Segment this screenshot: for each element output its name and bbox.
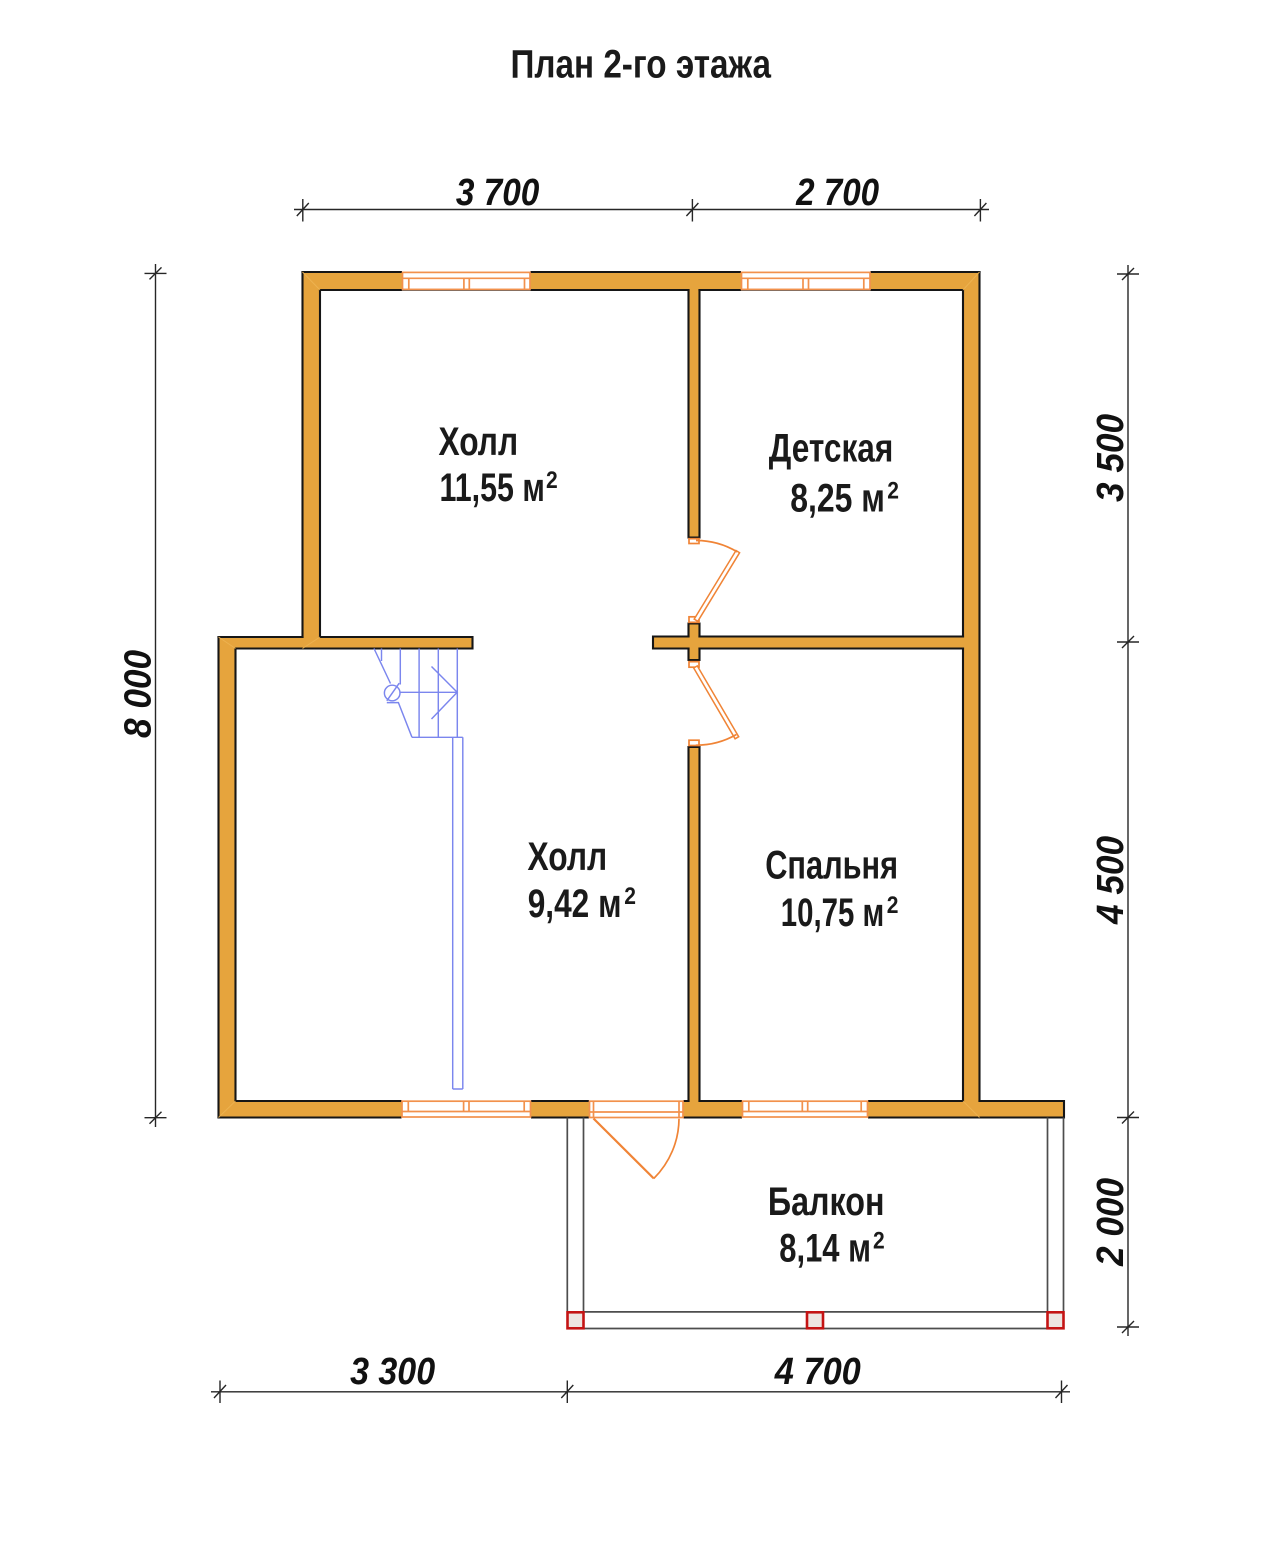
svg-text:2: 2 [546,467,558,494]
svg-text:Спальня: Спальня [765,844,898,888]
svg-text:План 2-го этажа: План 2-го этажа [511,43,772,87]
svg-text:2 000: 2 000 [1090,1178,1132,1267]
svg-text:4 500: 4 500 [1090,836,1132,925]
svg-text:Балкон: Балкон [768,1180,885,1224]
svg-text:8,14 м: 8,14 м [779,1227,871,1271]
svg-text:9,42 м: 9,42 м [528,882,622,926]
svg-text:Холл: Холл [528,835,608,879]
svg-text:Холл: Холл [439,420,519,464]
svg-text:2: 2 [887,892,899,919]
svg-text:2: 2 [887,477,899,504]
svg-text:2: 2 [624,883,636,910]
svg-text:4 700: 4 700 [774,1351,861,1393]
svg-text:11,55 м: 11,55 м [440,466,545,510]
svg-text:2 700: 2 700 [795,172,879,214]
svg-text:3 500: 3 500 [1090,414,1132,502]
svg-text:10,75 м: 10,75 м [781,891,884,935]
svg-text:8,25 м: 8,25 м [790,476,885,520]
svg-text:8 000: 8 000 [118,650,160,738]
svg-text:2: 2 [873,1228,885,1255]
svg-text:3 700: 3 700 [456,172,540,214]
svg-text:3 300: 3 300 [350,1351,435,1393]
svg-text:Детская: Детская [769,427,894,471]
